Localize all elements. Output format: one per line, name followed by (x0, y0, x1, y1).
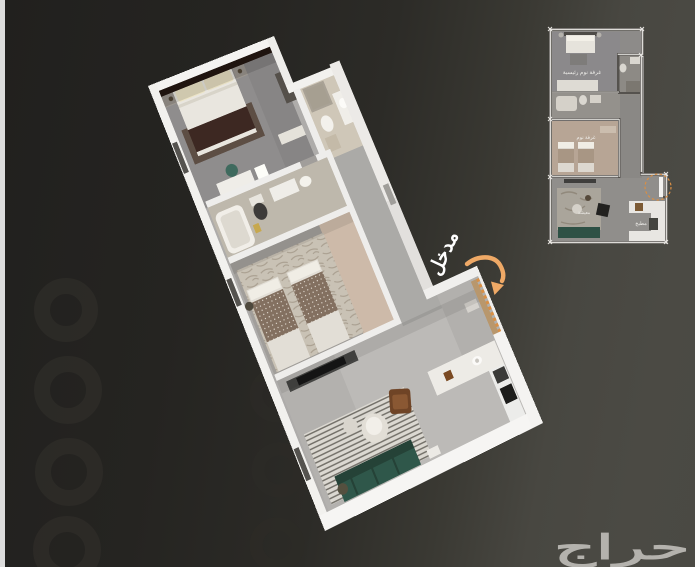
svg-text:غرفة نوم: غرفة نوم (577, 135, 596, 141)
svg-text:غرفة نوم رئيسية: غرفة نوم رئيسية (563, 69, 601, 76)
svg-text:مطبخ: مطبخ (635, 221, 647, 227)
svg-text:معيشة: معيشة (578, 210, 591, 215)
